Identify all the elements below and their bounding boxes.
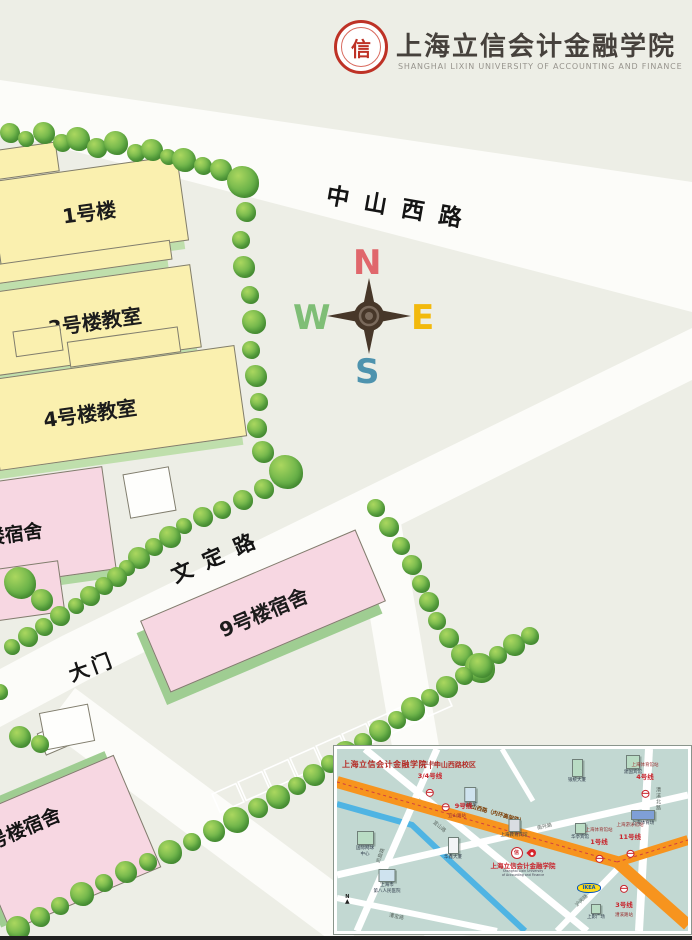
tree-icon: [213, 501, 231, 519]
metro-roundel-icon: [626, 850, 634, 858]
inset-building-label: 上影广场: [587, 915, 605, 920]
tree-icon: [428, 612, 446, 630]
tree-icon: [172, 148, 196, 172]
inset-title-separator: |: [429, 759, 432, 769]
tree-icon: [242, 310, 266, 334]
university-name-en: SHANGHAI LIXIN UNIVERSITY OF ACCOUNTING …: [398, 62, 682, 71]
tree-icon: [269, 455, 303, 489]
tree-icon: [245, 365, 267, 387]
ikea-logo: IKEA: [577, 883, 601, 893]
tree-icon: [369, 720, 391, 742]
tree-icon: [252, 441, 274, 463]
ikea-store: IKEA: [577, 883, 601, 893]
inset-title-campus: 中山西路校区: [434, 760, 476, 769]
station-name: 漕溪路站: [615, 913, 633, 918]
tree-icon: [115, 861, 137, 883]
inset-building-label: 第八人民医院: [374, 889, 401, 894]
inset-building-shape: [591, 904, 601, 914]
university-name-cn: 上海立信会计金融学院: [396, 26, 686, 63]
building-4-label: 4号楼教室: [41, 391, 138, 433]
tree-icon: [421, 689, 439, 707]
metro-station: 上海体育馆站4号线: [632, 764, 659, 802]
metro-roundel-icon: [426, 789, 434, 797]
university-seal-logo: 信: [334, 20, 388, 74]
tree-icon: [247, 418, 267, 438]
tree-icon: [233, 256, 255, 278]
tree-icon: [139, 853, 157, 871]
tree-icon: [33, 122, 55, 144]
metro-line-label: 9号线: [455, 803, 473, 810]
inset-building: 国际网球中心: [356, 831, 374, 857]
inset-building: 上影广场: [587, 904, 605, 920]
building-1-label: 1号楼: [60, 193, 117, 229]
tree-icon: [436, 676, 458, 698]
metro-roundel-icon: [620, 884, 628, 892]
inset-building-shape: [379, 869, 396, 882]
metro-station: 3号线漕溪路站: [615, 880, 633, 918]
compass-west-label: W: [293, 298, 331, 338]
inset-north-icon: N ▲: [345, 895, 350, 904]
inset-map-canvas: 上海立信会计金融学院|中山西路校区 宜山路凯旋路漕溪北路南丹路中山西路（内环高架…: [337, 749, 688, 931]
inset-building: 上海教育宾馆: [501, 819, 528, 838]
tree-icon: [402, 555, 422, 575]
tree-icon: [30, 907, 50, 927]
screenshot-bottom-edge: [0, 936, 692, 940]
tree-icon: [367, 499, 385, 517]
inset-building-label: 银统大厦: [568, 778, 586, 783]
metro-roundel-icon: [442, 803, 450, 811]
inset-building-shape: [631, 810, 655, 820]
station-name: 宜山路站: [442, 815, 473, 820]
tree-icon: [193, 507, 213, 527]
station-name: 上海体育馆站: [586, 829, 613, 834]
tree-icon: [254, 479, 274, 499]
tree-icon: [31, 735, 49, 753]
tree-icon: [232, 231, 250, 249]
tree-icon: [158, 840, 182, 864]
metro-roundel-icon: [595, 855, 603, 863]
metro-line-label: 3/4号线: [418, 773, 442, 780]
inset-building-label: 中心: [356, 852, 374, 857]
tree-icon: [18, 627, 38, 647]
inset-building-label: 华鑫大厦: [444, 855, 462, 860]
inset-north-triangle: ▲: [345, 899, 350, 904]
tree-icon: [223, 807, 249, 833]
tree-icon: [233, 490, 253, 510]
tree-icon: [242, 341, 260, 359]
campus-map: 信 上海立信会计金融学院 SHANGHAI LIXIN UNIVERSITY O…: [0, 0, 692, 940]
inset-building-shape: [448, 837, 459, 854]
inset-building-label: 上海教育宾馆: [501, 833, 528, 838]
tree-icon: [35, 618, 53, 636]
tree-icon: [183, 833, 201, 851]
building-white-small: [122, 466, 176, 518]
tree-icon: [70, 882, 94, 906]
tree-icon: [412, 575, 430, 593]
tree-icon: [95, 874, 113, 892]
compass-north-label: N: [353, 243, 381, 283]
metro-roundel-icon: [641, 790, 649, 798]
station-name: 上海体育馆站: [632, 764, 659, 769]
tree-icon: [203, 820, 225, 842]
inset-title: 上海立信会计金融学院|中山西路校区: [342, 752, 476, 771]
tree-icon: [68, 598, 84, 614]
university-header: 信 上海立信会计金融学院 SHANGHAI LIXIN UNIVERSITY O…: [330, 18, 690, 80]
location-pin-icon: [526, 847, 537, 858]
inset-title-cn: 上海立信会计金融学院: [342, 759, 427, 769]
compass-south-label: S: [355, 352, 380, 392]
tree-icon: [248, 798, 268, 818]
metro-station: 上海体育馆站1号线: [586, 829, 613, 867]
inset-university-en2: of Accounting and Finance: [478, 874, 568, 878]
tree-icon: [51, 897, 69, 915]
tree-icon: [250, 393, 268, 411]
compass-east-label: E: [411, 298, 434, 338]
inset-building-label: 上海市: [374, 883, 401, 888]
inset-building-shape: [572, 759, 583, 777]
inset-building: 华鑫大厦: [444, 837, 462, 860]
mini-seal-icon: 信: [511, 847, 523, 859]
tree-icon: [419, 592, 439, 612]
metro-line-label: 1号线: [590, 839, 608, 846]
metro-station: 9号线宜山路站: [442, 798, 473, 820]
metro-line-label: 4号线: [636, 774, 654, 781]
tree-icon: [227, 166, 259, 198]
inset-building: 上海市第八人民医院: [374, 869, 401, 894]
city-inset-map: 上海立信会计金融学院|中山西路校区 宜山路凯旋路漕溪北路南丹路中山西路（内环高架…: [333, 745, 692, 935]
tree-icon: [521, 627, 539, 645]
tree-icon: [266, 785, 290, 809]
tree-icon: [0, 123, 20, 143]
tree-icon: [50, 606, 70, 626]
inset-building: 银统大厦: [568, 759, 586, 783]
inset-building-label: 国际网球: [356, 846, 374, 851]
inset-university-marker: 信 上海立信会计金融学院 Shanghai Lixin University o…: [478, 847, 568, 878]
metro-line-label: 3号线: [615, 902, 633, 909]
tree-icon: [18, 131, 34, 147]
inset-building-shape: [508, 819, 520, 832]
building-9-label: 9号楼宿舍: [214, 579, 312, 642]
tree-icon: [236, 202, 256, 222]
tree-icon: [9, 726, 31, 748]
metro-line-label: 11号线: [619, 834, 641, 841]
tree-icon: [241, 286, 259, 304]
station-name: 上海游泳馆站: [617, 824, 644, 829]
tree-icon: [392, 537, 410, 555]
tree-icon: [288, 777, 306, 795]
tree-icon: [379, 517, 399, 537]
inset-building-shape: [575, 823, 586, 834]
tree-icon: [104, 131, 128, 155]
metro-station: 上海游泳馆站11号线: [617, 824, 644, 862]
inset-building-shape: [357, 831, 374, 845]
tree-icon: [31, 589, 53, 611]
tree-icon: [4, 639, 20, 655]
seal-character: 信: [341, 27, 381, 67]
